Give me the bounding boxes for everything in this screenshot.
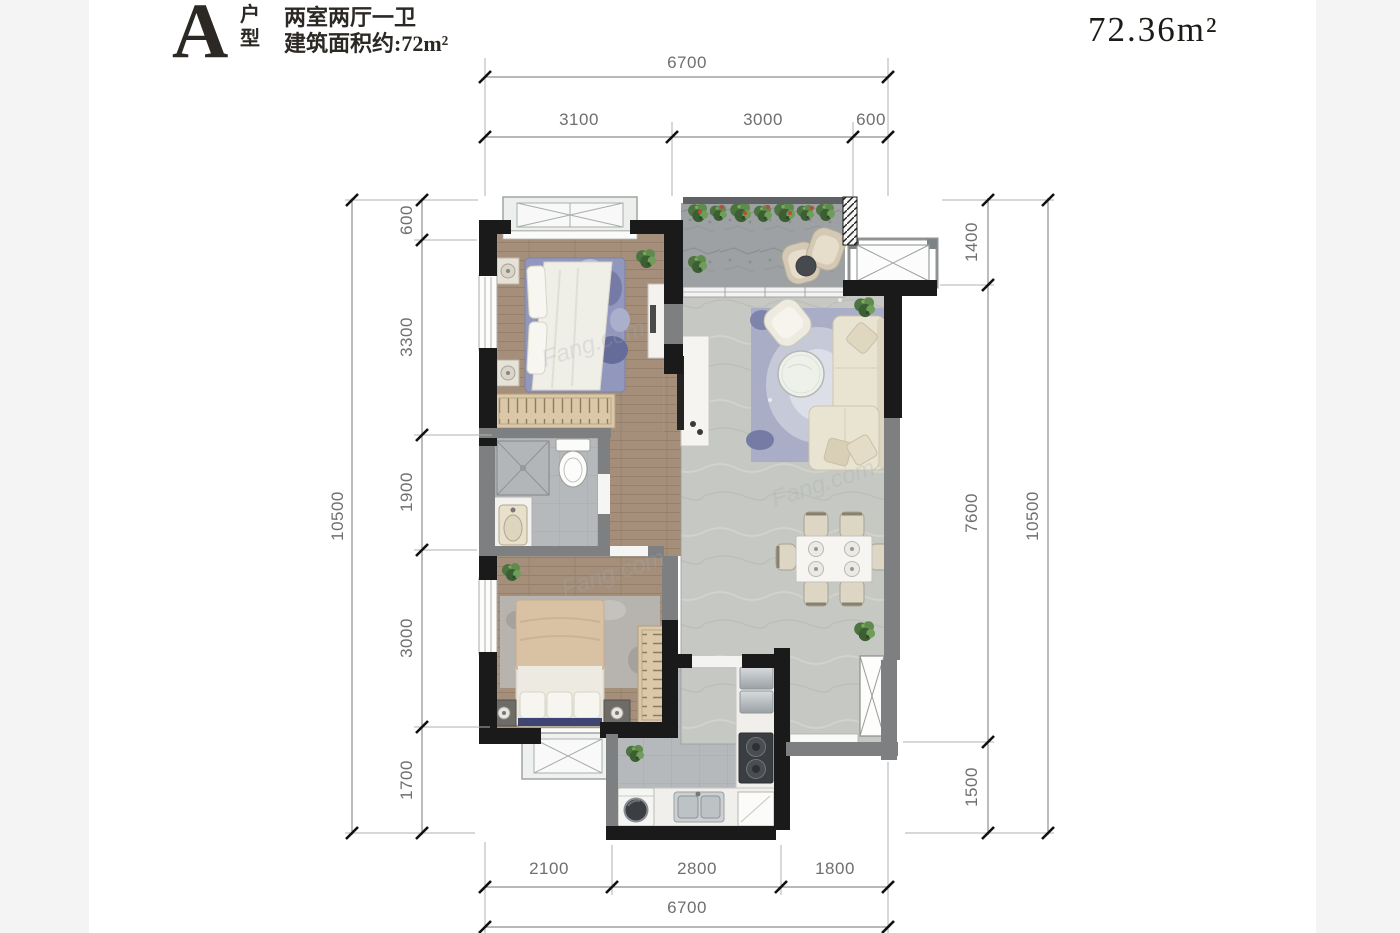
corner-cabinet bbox=[738, 792, 774, 826]
dim-bottom-seg-1: 2100 bbox=[529, 859, 569, 879]
dining-chair bbox=[804, 512, 828, 538]
master-bed bbox=[525, 258, 630, 392]
entry-door bbox=[860, 656, 884, 736]
dim-top-seg-1: 3100 bbox=[559, 110, 599, 130]
nightstand bbox=[497, 360, 519, 386]
window-left-1 bbox=[479, 275, 497, 350]
dim-bottom-seg-2: 2800 bbox=[677, 859, 717, 879]
floorplan-page: A 户型 两室两厅一卫 建筑面积约:72m² 72.36m² bbox=[0, 0, 1400, 933]
balcony-side-table bbox=[796, 256, 816, 276]
floorplan-drawing bbox=[0, 0, 1400, 933]
dining-chair bbox=[840, 580, 864, 606]
nightstand bbox=[497, 258, 519, 284]
dim-right-seg-2: 7600 bbox=[962, 493, 982, 533]
wardrobe bbox=[495, 394, 615, 428]
pillow bbox=[574, 692, 600, 718]
kitchen-sink bbox=[674, 792, 724, 823]
dim-right-total: 10500 bbox=[1023, 491, 1043, 541]
ac-platform bbox=[849, 239, 937, 287]
dining-table bbox=[796, 536, 872, 582]
dining-chair bbox=[840, 512, 864, 538]
pillow bbox=[547, 692, 572, 718]
bay-window-top bbox=[503, 197, 637, 239]
dim-bottom-seg-3: 1800 bbox=[815, 859, 855, 879]
dim-left-total: 10500 bbox=[328, 491, 348, 541]
vanity-sink bbox=[494, 497, 532, 553]
dim-left-seg-1: 600 bbox=[397, 205, 417, 235]
window-left-2 bbox=[479, 578, 497, 654]
shower bbox=[497, 441, 549, 495]
dim-left-seg-5: 1700 bbox=[397, 760, 417, 800]
dim-top-total: 6700 bbox=[667, 53, 707, 73]
dim-right-seg-1: 1400 bbox=[962, 222, 982, 262]
pillow bbox=[527, 266, 548, 319]
dim-top-seg-3: 600 bbox=[856, 110, 886, 130]
dim-left-seg-4: 3000 bbox=[397, 618, 417, 658]
washing-machine bbox=[618, 788, 654, 826]
dim-right-seg-3: 1500 bbox=[962, 767, 982, 807]
coffee-table bbox=[778, 351, 824, 397]
balcony-sliding-door bbox=[683, 287, 845, 297]
stove bbox=[739, 733, 773, 783]
dim-left-seg-2: 3300 bbox=[397, 317, 417, 357]
second-bed bbox=[516, 600, 604, 726]
dim-left-seg-3: 1900 bbox=[397, 472, 417, 512]
pillow bbox=[520, 692, 545, 718]
dim-bottom-total: 6700 bbox=[667, 898, 707, 918]
dim-top-seg-2: 3000 bbox=[743, 110, 783, 130]
pillow bbox=[527, 322, 548, 375]
dining-chair bbox=[804, 580, 828, 606]
